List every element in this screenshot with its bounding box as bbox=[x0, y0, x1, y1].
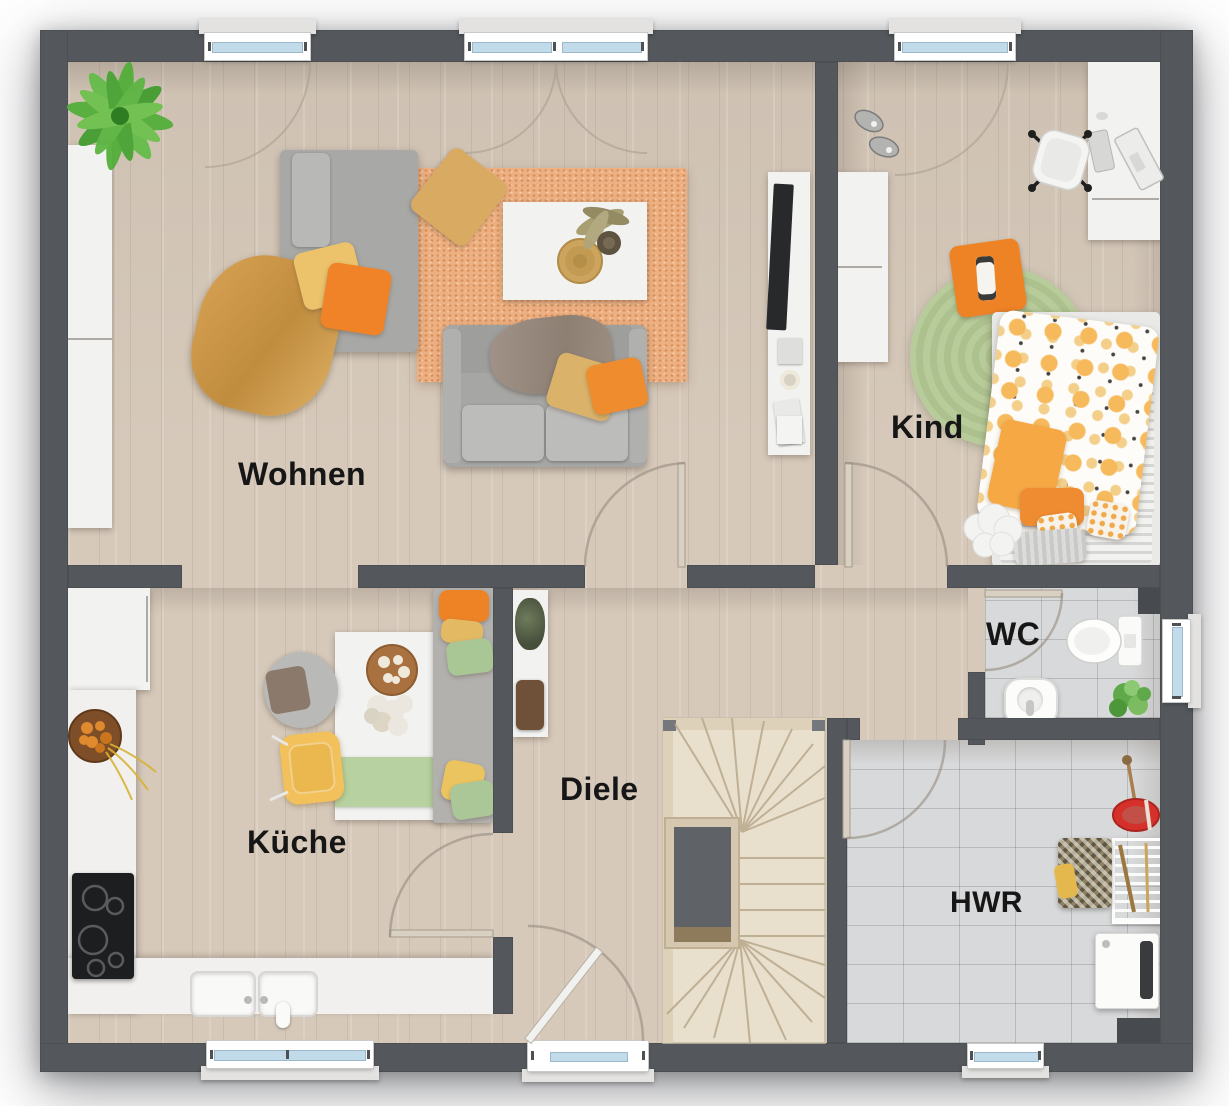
dining-decor bbox=[270, 645, 417, 800]
room-label-kueche: Küche bbox=[247, 826, 347, 858]
floor-plan: Wohnen Kind Küche Diele WC HWR bbox=[0, 0, 1229, 1106]
cloud-rug bbox=[964, 504, 1022, 557]
room-label-hwr: HWR bbox=[950, 888, 1023, 918]
rack-stick bbox=[1120, 843, 1148, 912]
door-hwr bbox=[843, 740, 945, 838]
staircase bbox=[663, 718, 825, 1043]
stair-void bbox=[674, 827, 731, 927]
wc-plant bbox=[1109, 680, 1151, 717]
palm-plant bbox=[65, 60, 175, 172]
door-wohnen-diele bbox=[585, 463, 685, 567]
door-kueche bbox=[390, 834, 493, 937]
red-bucket bbox=[1113, 755, 1159, 831]
door-entry-swing bbox=[525, 926, 643, 1043]
door-kind bbox=[845, 463, 947, 567]
sink-knobs bbox=[244, 996, 268, 1004]
room-label-wc: WC bbox=[986, 618, 1040, 650]
slippers bbox=[852, 106, 902, 161]
window-swing-arcs bbox=[205, 62, 1008, 175]
cooktop-burners bbox=[79, 886, 123, 976]
desk-chair bbox=[1028, 127, 1092, 193]
room-label-diele: Diele bbox=[560, 773, 638, 805]
plan-overlay bbox=[0, 0, 1229, 1106]
fruit-basket bbox=[69, 710, 156, 800]
table-decor bbox=[558, 203, 631, 283]
room-label-wohnen: Wohnen bbox=[238, 458, 366, 490]
room-label-kind: Kind bbox=[891, 411, 964, 443]
toilet bbox=[1067, 616, 1142, 666]
desk-computer bbox=[1087, 112, 1164, 191]
